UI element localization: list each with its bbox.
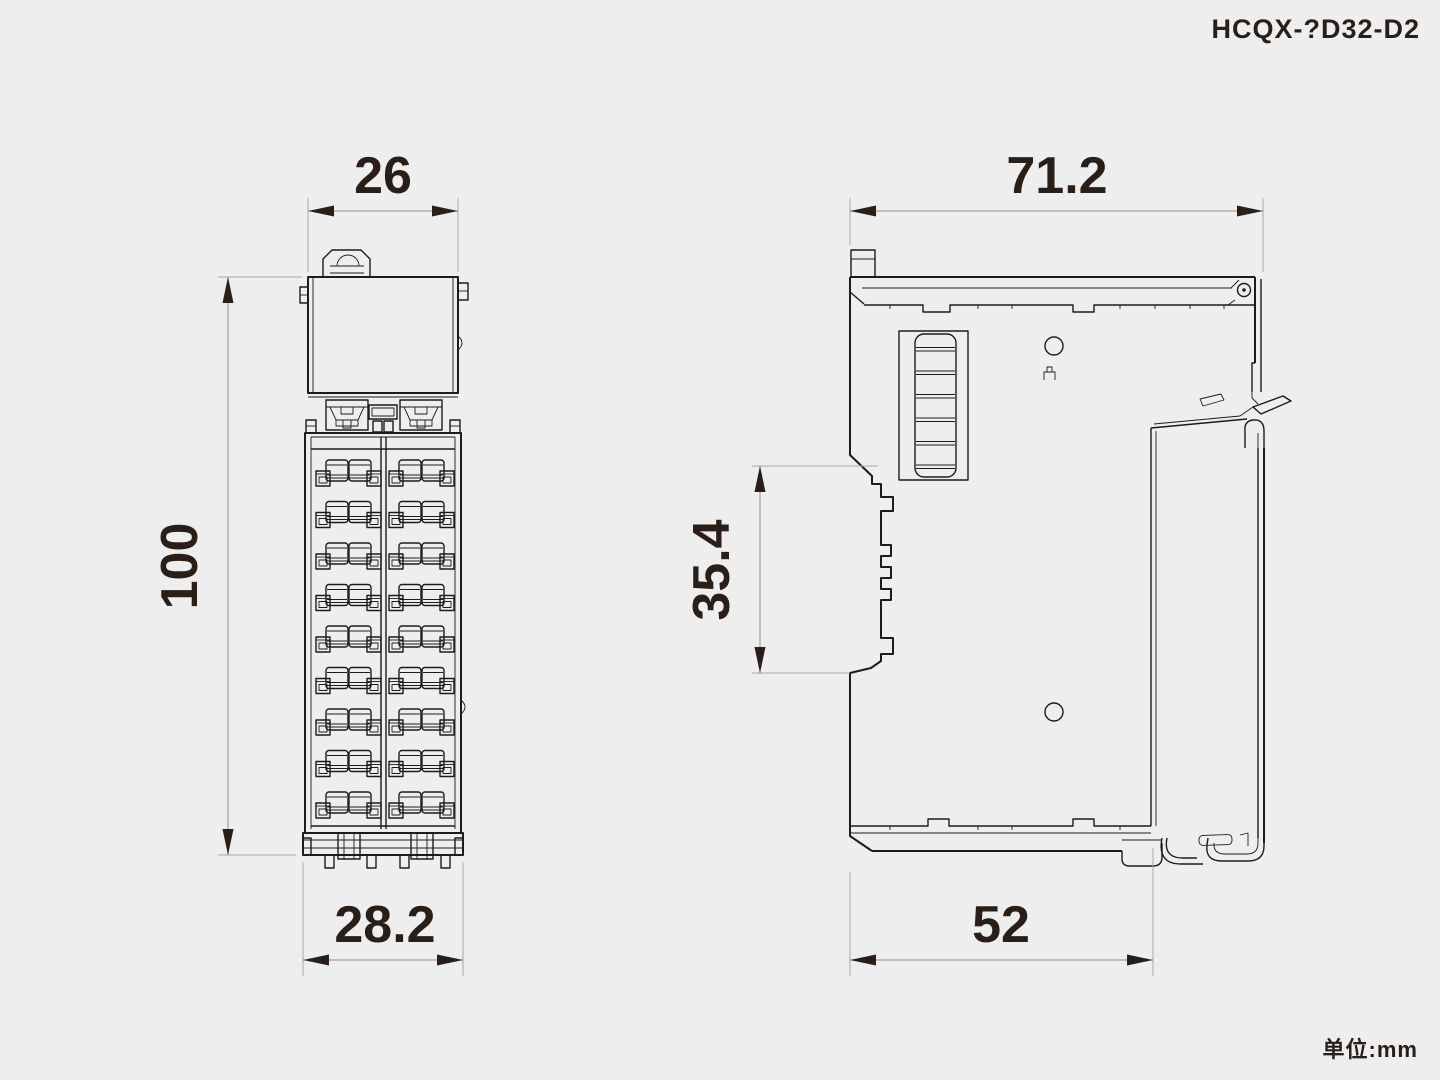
technical-drawing: 26 100 28.2 71.2 — [0, 0, 1440, 1080]
vent-slots — [899, 331, 968, 480]
dim-label-26: 26 — [354, 147, 412, 205]
mount-holes — [1045, 337, 1063, 721]
din-clip-tab — [323, 250, 370, 277]
dim-side-din-height: 35.4 — [683, 466, 878, 673]
dim-label-28-2: 28.2 — [334, 896, 435, 954]
terminal-block — [305, 433, 465, 833]
drawing-page: 26 100 28.2 71.2 — [0, 0, 1440, 1080]
dim-front-top-width: 26 — [308, 147, 458, 272]
dim-front-bottom-width: 28.2 — [303, 862, 463, 976]
latch-right — [400, 400, 442, 430]
dim-label-71-2: 71.2 — [1006, 147, 1107, 205]
screw-boss — [1228, 280, 1251, 305]
mount-hole-top — [1045, 337, 1063, 355]
din-rail-groove — [850, 277, 893, 851]
flap-lip — [1253, 396, 1291, 414]
side-top-band — [850, 250, 1261, 392]
side-view — [850, 250, 1291, 866]
dim-label-35-4: 35.4 — [683, 519, 741, 620]
latch-left — [326, 400, 368, 430]
module-upper-panel — [300, 277, 468, 397]
dim-front-height: 100 — [151, 277, 302, 855]
front-view — [300, 250, 468, 868]
page-title: HCQX-?D32-D2 — [1211, 14, 1420, 45]
side-bottom-band — [850, 819, 1162, 866]
bottom-mount-strip — [303, 833, 463, 868]
bottom-latch-hooks — [1161, 833, 1264, 864]
mount-hole-bottom — [1045, 703, 1063, 721]
dim-side-bottom-width: 52 — [850, 848, 1153, 976]
terminal-rows — [316, 460, 454, 818]
release-latch-strip — [306, 400, 460, 433]
dim-label-52: 52 — [972, 896, 1030, 954]
detail-marks — [1044, 367, 1224, 406]
dim-label-100: 100 — [151, 523, 209, 610]
dim-side-top-width: 71.2 — [850, 147, 1263, 272]
cover-flap — [1151, 392, 1291, 843]
unit-label: 单位:mm — [1323, 1032, 1418, 1064]
